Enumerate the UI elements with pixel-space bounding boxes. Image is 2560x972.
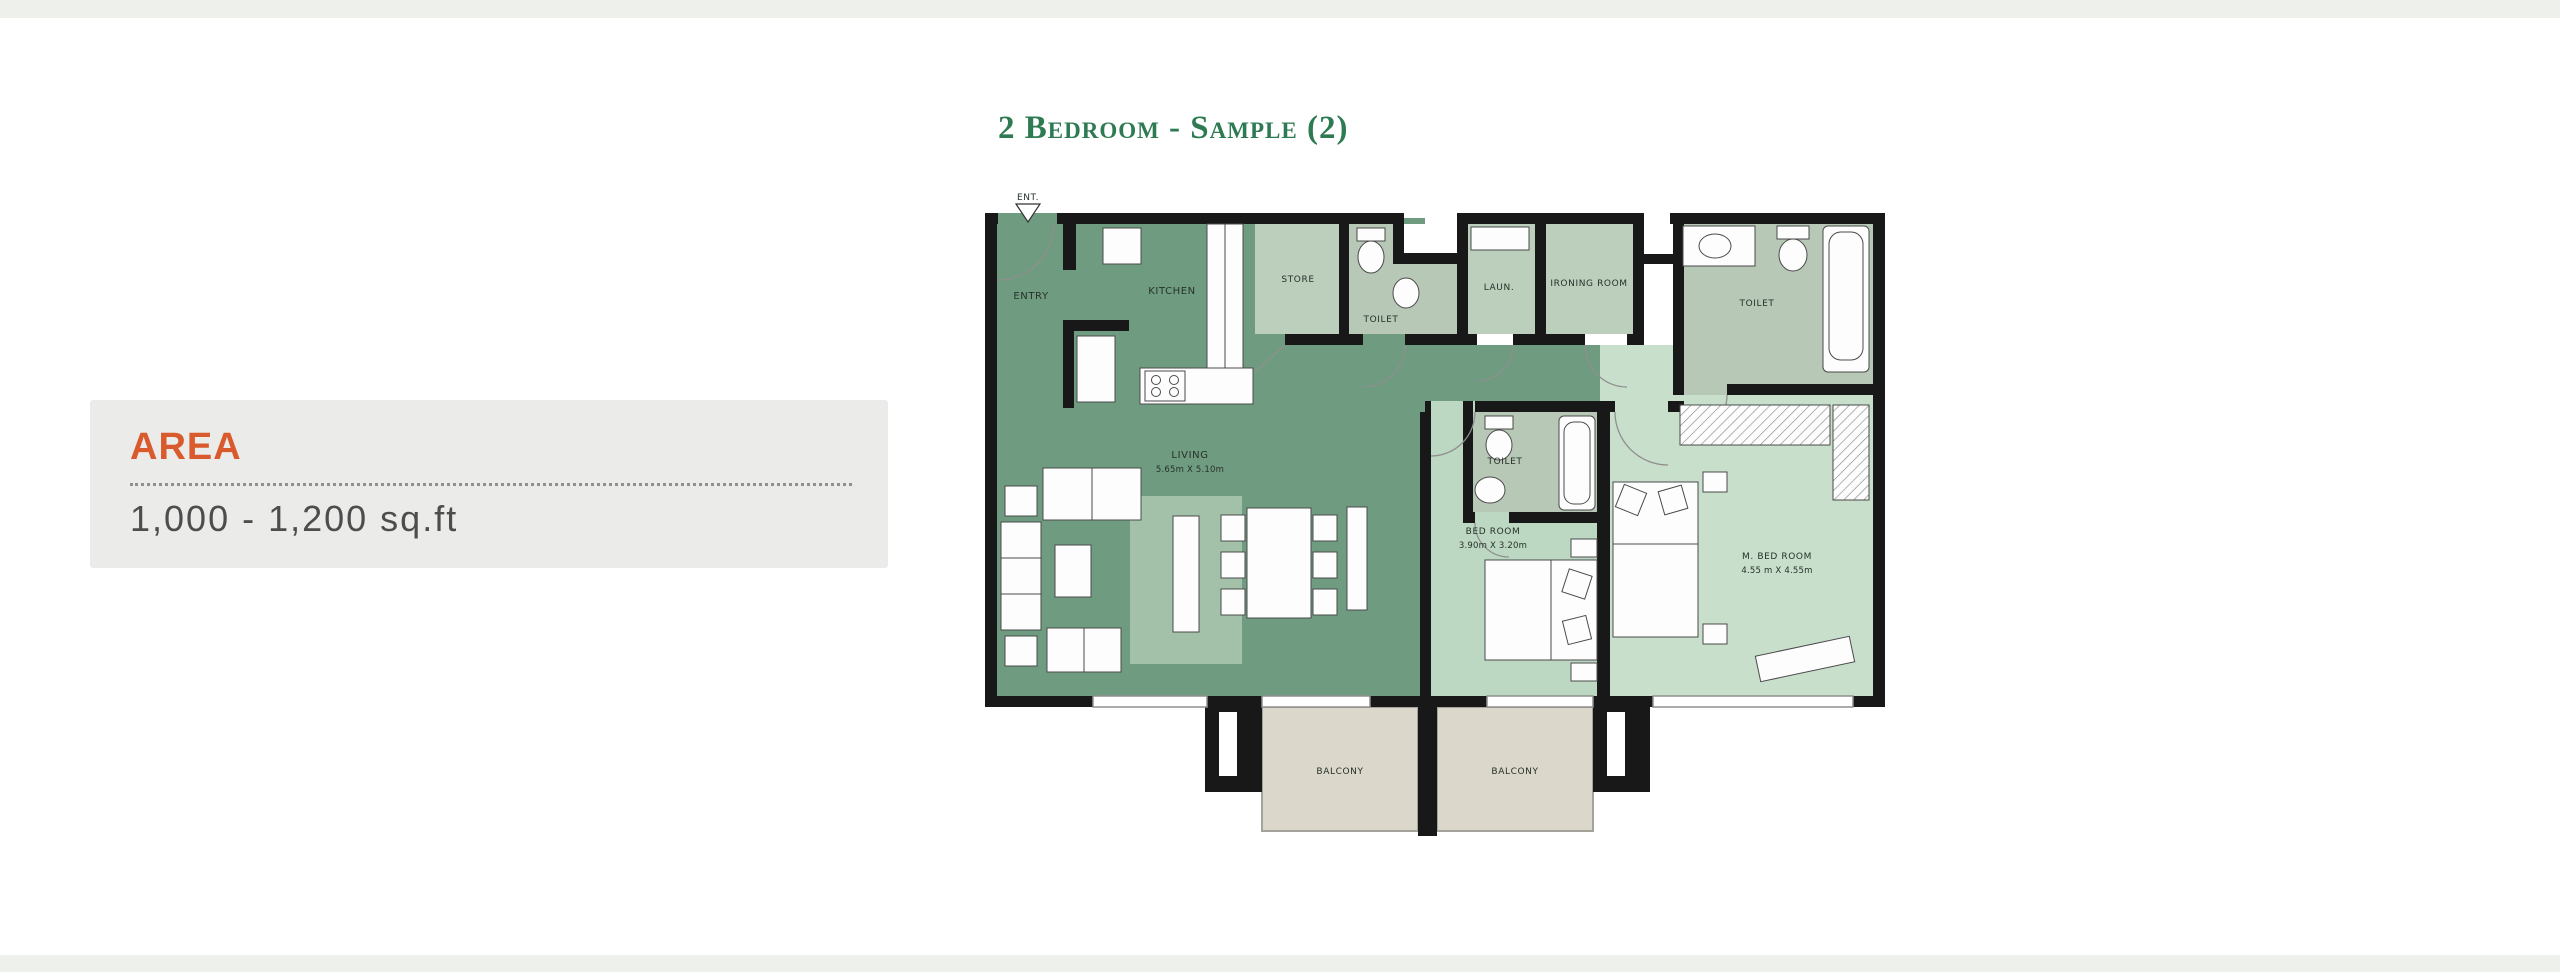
floor-plan: ENT. ENTRY KITCHEN STORE TOILET LAUN. IR…: [985, 200, 1885, 850]
entry-marker-label: ENT.: [1017, 193, 1039, 203]
laundry-shelf-icon: [1471, 227, 1529, 250]
stove-icon: [1145, 371, 1185, 401]
label-entry: ENTRY: [1013, 291, 1049, 302]
page-title: 2 Bedroom - Sample (2): [998, 110, 1348, 147]
balcony-post-slot: [1607, 712, 1625, 776]
label-toilet-bedroom: TOILET: [1486, 457, 1522, 467]
label-balcony-left: BALCONY: [1316, 767, 1363, 777]
area-divider: [130, 483, 852, 486]
bathtub-icon: [1559, 416, 1595, 510]
label-master-bedroom: M. BED ROOM: [1742, 552, 1812, 562]
label-kitchen: KITCHEN: [1148, 286, 1196, 297]
coffee-table-icon: [1055, 545, 1091, 597]
toilet-icon: [1777, 226, 1809, 271]
toilet-icon: [1357, 228, 1385, 273]
area-panel: AREA 1,000 - 1,200 sq.ft: [90, 400, 888, 568]
bed-icon: [1485, 539, 1597, 681]
sink-icon: [1393, 278, 1419, 308]
page-bottom-margin: [0, 955, 2560, 972]
label-toilet-master: TOILET: [1738, 299, 1774, 309]
room-fills: [997, 218, 1873, 707]
bathtub-icon: [1823, 226, 1869, 372]
label-balcony-right: BALCONY: [1491, 767, 1538, 777]
cabinet-icon: [1347, 507, 1367, 610]
label-bedroom-dims: 3.90m X 3.20m: [1459, 541, 1527, 551]
floor-plan-svg: ENT. ENTRY KITCHEN STORE TOILET LAUN. IR…: [985, 200, 1885, 850]
label-living-dims: 5.65m X 5.10m: [1156, 465, 1224, 475]
page-top-margin: [0, 0, 2560, 18]
area-value: 1,000 - 1,200 sq.ft: [130, 498, 850, 540]
label-toilet-guest: TOILET: [1362, 315, 1398, 325]
label-store: STORE: [1281, 275, 1314, 285]
area-heading: AREA: [130, 426, 850, 469]
closet-icon: [1077, 336, 1115, 402]
balcony-post-slot: [1219, 712, 1237, 776]
label-living: LIVING: [1171, 450, 1208, 461]
label-ironing-room: IRONING ROOM: [1550, 279, 1627, 289]
dining-table-icon: [1221, 508, 1337, 618]
label-master-bedroom-dims: 4.55 m X 4.55m: [1741, 566, 1812, 576]
toilet-icon: [1485, 416, 1513, 460]
sink-icon: [1699, 234, 1731, 258]
sink-icon: [1475, 477, 1505, 503]
console-table-icon: [1173, 516, 1199, 632]
label-laundry: LAUN.: [1484, 283, 1515, 293]
label-bedroom: BED ROOM: [1466, 527, 1521, 537]
